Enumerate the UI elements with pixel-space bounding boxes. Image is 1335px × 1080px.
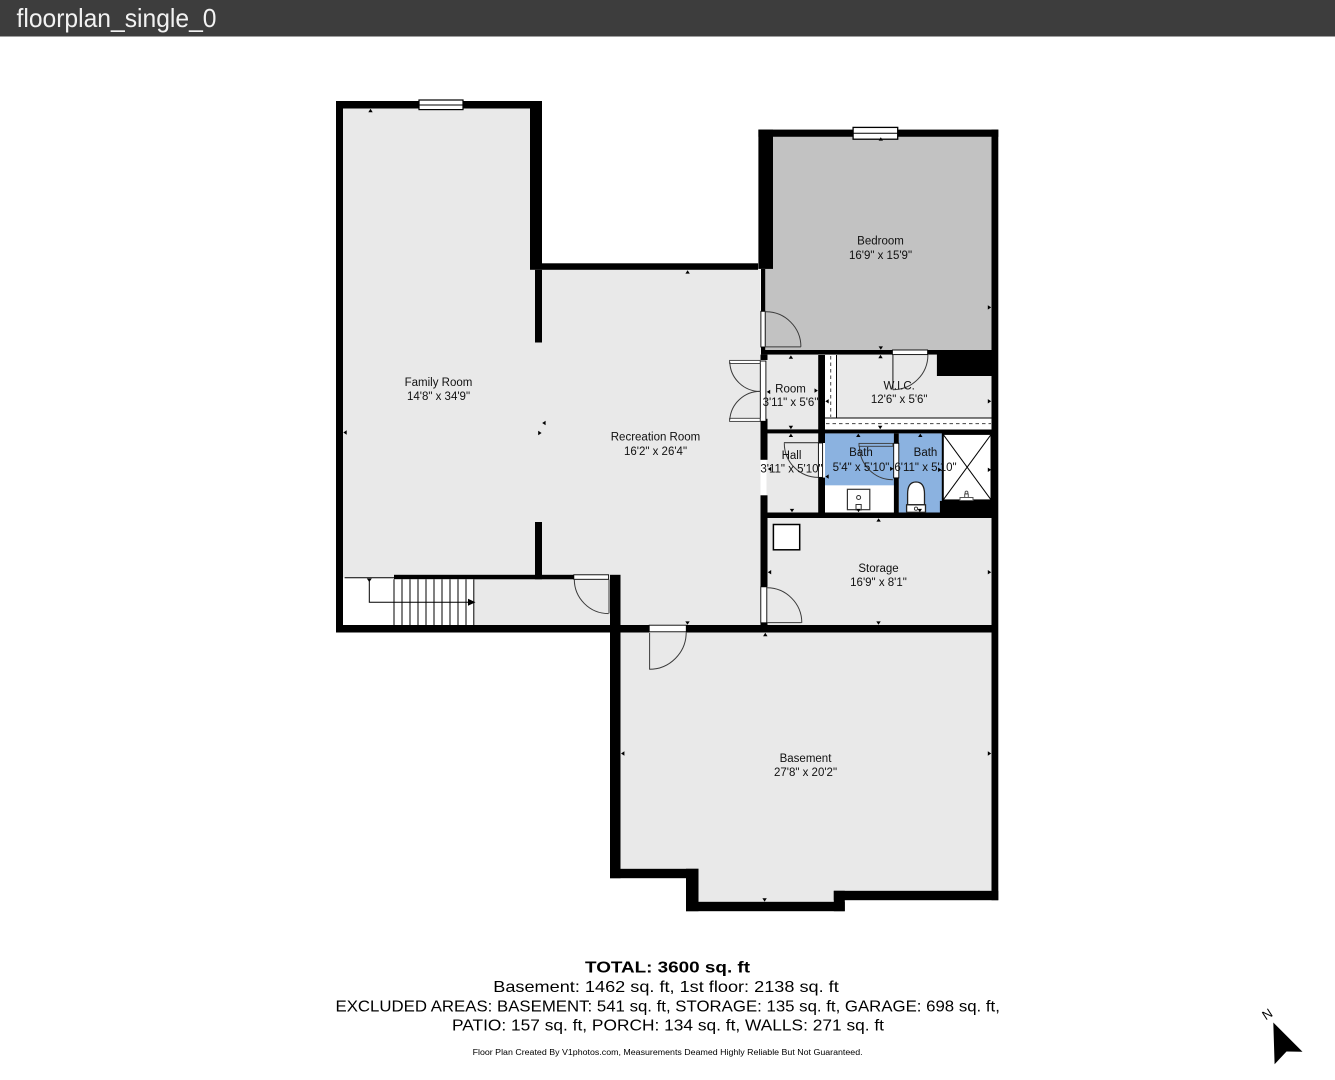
svg-text:PATIO: 157 sq. ft, PORCH: 134: PATIO: 157 sq. ft, PORCH: 134 sq. ft, WA… [452,1018,885,1035]
svg-text:Basement: 1462 sq. ft, 1st flo: Basement: 1462 sq. ft, 1st floor: 2138 s… [493,979,839,996]
svg-text:Bedroom: Bedroom [857,235,904,247]
svg-text:16'2" x 26'4": 16'2" x 26'4" [624,446,687,458]
svg-text:Family Room: Family Room [405,377,473,389]
svg-text:Room: Room [775,384,806,396]
svg-text:27'8" x 20'2": 27'8" x 20'2" [774,767,837,779]
svg-text:6'11" x 5'10": 6'11" x 5'10" [894,462,956,474]
svg-text:16'9" x 15'9": 16'9" x 15'9" [849,250,912,262]
svg-text:W.I.C.: W.I.C. [884,381,915,393]
svg-text:Floor Plan Created By V1photos: Floor Plan Created By V1photos.com, Meas… [473,1048,863,1057]
svg-text:Bath: Bath [849,447,873,459]
svg-text:Hall: Hall [782,450,802,462]
svg-text:5'4" x 5'10": 5'4" x 5'10" [833,462,890,474]
svg-text:16'9" x 8'1": 16'9" x 8'1" [850,577,907,589]
svg-text:EXCLUDED AREAS: BASEMENT: 541: EXCLUDED AREAS: BASEMENT: 541 sq. ft, ST… [336,998,1000,1015]
svg-text:12'6" x 5'6": 12'6" x 5'6" [871,394,928,406]
svg-text:14'8" x 34'9": 14'8" x 34'9" [407,391,470,403]
svg-text:Basement: Basement [780,753,833,765]
svg-text:Recreation Room: Recreation Room [611,431,700,443]
svg-text:Bath: Bath [914,447,938,459]
svg-text:Storage: Storage [858,563,898,575]
svg-text:3'11" x 5'10": 3'11" x 5'10" [760,464,822,476]
svg-text:floorplan_single_0: floorplan_single_0 [17,3,217,33]
svg-text:3'11" x 5'6": 3'11" x 5'6" [763,397,819,409]
svg-text:TOTAL: 3600 sq. ft: TOTAL: 3600 sq. ft [585,960,751,977]
